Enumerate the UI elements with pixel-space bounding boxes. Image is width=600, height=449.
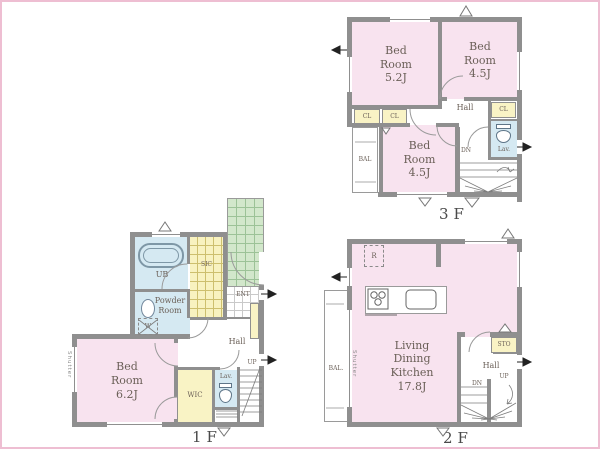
wall-segment — [517, 17, 522, 202]
kitchen-counter — [365, 286, 447, 314]
wall-segment — [379, 127, 383, 192]
wall-segment — [438, 22, 442, 109]
window-gap — [390, 17, 430, 22]
wall-segment — [130, 232, 135, 339]
wall-segment — [223, 232, 227, 320]
room-label: Bed Room 4.5J — [464, 40, 496, 81]
wall-segment — [135, 289, 187, 292]
room-1f-bedroom-6-2: Bed Room 6.2J — [76, 338, 178, 424]
room-3f-bedroom-4-5-a: Bed Room 4.5J — [441, 22, 519, 99]
wall-segment — [491, 119, 517, 121]
wall-segment — [174, 419, 178, 422]
window-gap — [259, 290, 264, 300]
wall-segment — [455, 127, 460, 192]
stairs-3f-dn-label: DN — [458, 147, 474, 155]
window-gap — [72, 347, 77, 392]
washer-box: W — [138, 318, 158, 335]
window-gap — [517, 355, 522, 369]
refrigerator-box: R — [364, 245, 384, 267]
lavatory-1f-label: Lav. — [215, 372, 237, 381]
wall-segment — [436, 244, 441, 267]
powder-room-label: Powder Room — [150, 295, 190, 317]
floor-plan-canvas: Bed Room 5.2J Bed Room 4.5J Bed Room 4.5… — [0, 0, 600, 449]
toilet-tank-icon — [496, 124, 511, 129]
floor-label-3f: 3F — [429, 205, 479, 223]
room-3f-bedroom-4-5-b: Bed Room 4.5J — [382, 125, 457, 194]
stairs-3f — [460, 163, 517, 192]
room-3f-bedroom-5-2: Bed Room 5.2J — [352, 22, 440, 107]
wall-segment — [347, 422, 522, 427]
shutter-label-2f: Shutter — [349, 350, 357, 394]
stairs-1f-up-label: UP — [242, 358, 262, 367]
balcony-2f — [324, 290, 348, 422]
wall-segment — [72, 422, 264, 427]
shoe-closet-label: SIC — [190, 260, 223, 270]
stairs-2f-dn-label: DN — [468, 380, 486, 388]
window-gap — [152, 232, 180, 237]
window-gap — [517, 252, 522, 287]
window-gap — [347, 268, 352, 286]
storage-2f: STO — [491, 337, 517, 353]
wall-segment — [347, 17, 522, 22]
wall-segment — [174, 339, 178, 343]
wall-segment — [174, 366, 178, 397]
wall-segment — [438, 97, 447, 101]
closet-3f-3: CL — [491, 102, 516, 118]
hall-1f-label: Hall — [220, 336, 254, 347]
balcony-3f-label: BAL — [352, 155, 378, 165]
shoe-closet-1f — [190, 237, 223, 317]
window-gap — [397, 192, 447, 197]
closet-3f-1: CL — [354, 109, 380, 124]
window-gap — [517, 52, 522, 90]
hall-2f-label: Hall — [476, 361, 506, 371]
floor-label-1f: 1F — [182, 428, 232, 446]
toilet-tank-icon — [219, 383, 232, 388]
room-label: Bed Room 6.2J — [111, 360, 143, 401]
wall-segment — [215, 407, 237, 410]
room-label: Bed Room 4.5J — [404, 139, 436, 180]
bathtub-icon — [138, 243, 184, 268]
balcony-2f-label: BAL. — [324, 364, 348, 374]
closet-3f-2: CL — [382, 109, 407, 124]
window-gap — [107, 422, 162, 427]
wall-segment — [237, 370, 240, 422]
entrance-label: ENT — [228, 290, 258, 300]
window-gap — [465, 239, 507, 244]
wall-segment — [72, 334, 190, 339]
lavatory-3f-label: Lav. — [491, 144, 517, 155]
shoe-cabinet — [250, 303, 259, 339]
wall-segment — [457, 337, 461, 422]
floor-label-2f: 2F — [433, 429, 483, 447]
wall-segment — [190, 317, 223, 320]
bathroom-1f-label: UB — [148, 269, 176, 281]
window-gap — [347, 57, 352, 92]
walk-in-closet-1f: WIC — [177, 368, 213, 423]
wall-segment — [464, 97, 522, 101]
room-2f-ldk-label: Living Dining Kitchen 17.8J — [372, 336, 452, 396]
shutter-label-1f: Shutter — [63, 351, 72, 395]
room-label: Bed Room 5.2J — [380, 44, 412, 85]
wall-segment — [488, 157, 522, 160]
window-gap — [259, 252, 264, 285]
stairs-2f-up-label: UP — [495, 373, 513, 381]
hall-3f-label: Hall — [449, 102, 481, 113]
window-gap — [517, 140, 522, 154]
wall-segment — [487, 379, 491, 422]
